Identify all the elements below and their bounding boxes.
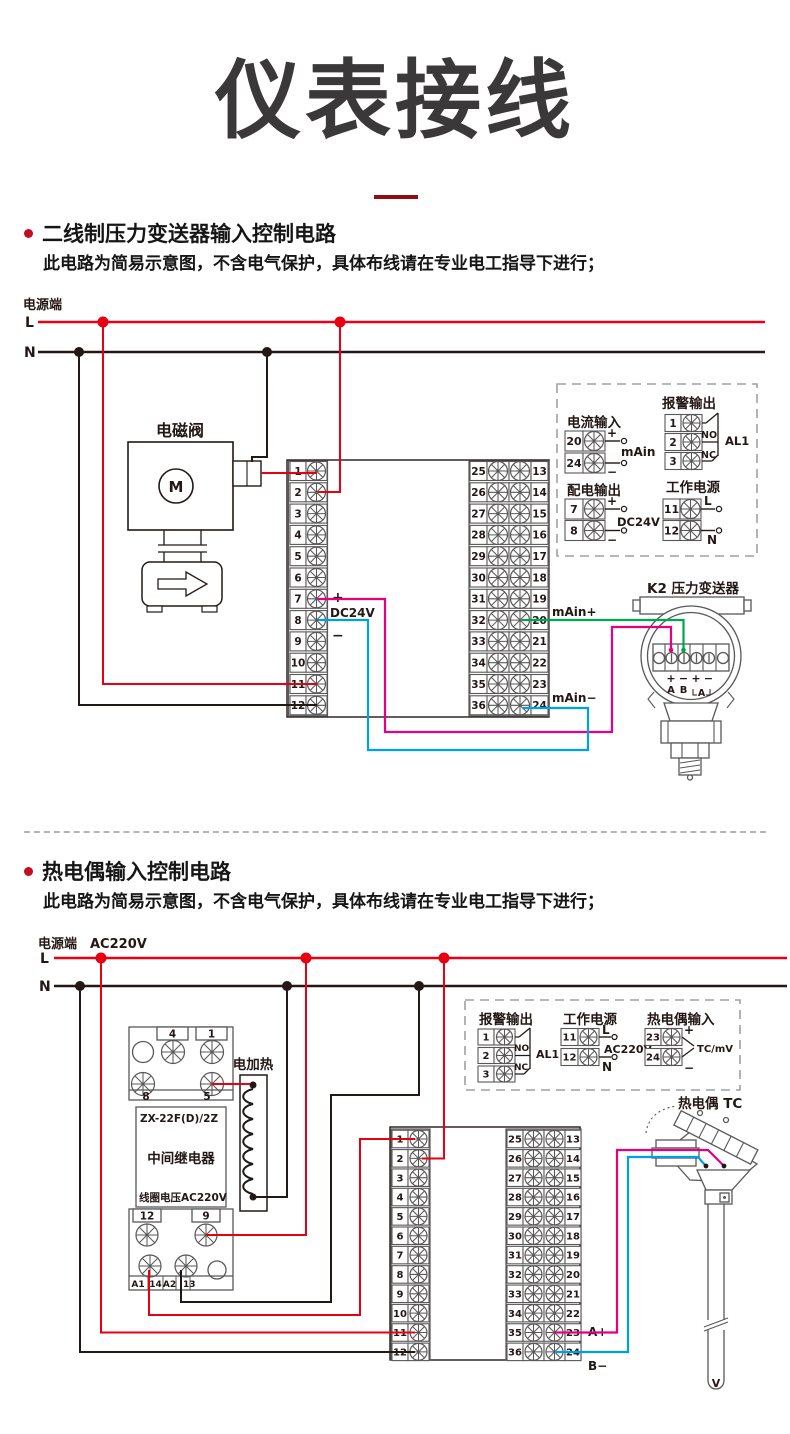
screw-icon <box>525 1131 542 1148</box>
screw-icon <box>585 521 604 540</box>
screw-icon <box>546 1285 563 1302</box>
screw-icon <box>683 453 700 470</box>
terminal-point <box>716 506 721 511</box>
terminal-number: 13 <box>532 466 547 478</box>
terminal-number: 3 <box>294 508 301 520</box>
screw-icon <box>525 1266 542 1283</box>
pol-label: + <box>691 672 700 685</box>
heater-terminal-dot <box>250 1194 257 1201</box>
screw-icon <box>546 1189 563 1206</box>
power-terminal-label: 电源端 <box>23 297 62 313</box>
screw-icon <box>511 589 530 608</box>
screw-icon <box>489 483 508 502</box>
screw-icon <box>489 611 508 630</box>
screw-icon <box>546 1131 563 1148</box>
terminal-number: 14 <box>532 487 547 499</box>
terminal-number: 20 <box>566 1270 580 1281</box>
terminal-number: 27 <box>508 1173 522 1184</box>
terminal-number: 9 <box>397 1289 404 1300</box>
line-l-label: L <box>25 315 34 331</box>
terminal-number: 1 <box>669 418 676 430</box>
screw-icon <box>410 1208 427 1225</box>
terminal-number: 4 <box>397 1193 404 1204</box>
section2-note: 此电路为简易示意图，不含电气保护，具体布线请在专业电工指导下进行； <box>43 887 604 912</box>
screw-icon <box>681 500 700 519</box>
dc24v-minus: − <box>332 628 344 644</box>
current-input-panel: 电流输入 2024 + mAin − <box>565 414 655 479</box>
screw-icon <box>525 1324 542 1341</box>
screw-icon <box>511 525 530 544</box>
terminal-number: 35 <box>508 1328 522 1339</box>
screw-icon <box>410 1247 427 1264</box>
terminal-number: 2 <box>294 487 301 499</box>
work-power-panel: 工作电源 1112 L N <box>663 479 722 547</box>
ci-minus: − <box>607 465 617 479</box>
section-divider <box>24 831 766 833</box>
screw-icon <box>308 654 326 672</box>
terminal-number: 34 <box>508 1309 522 1320</box>
terminal-number: 22 <box>532 657 547 669</box>
section1-heading-row: 二线制压力变送器输入控制电路 <box>24 218 336 248</box>
terminal-number: 24 <box>532 700 547 712</box>
line-n-label: N <box>24 345 36 361</box>
terminal-number: 3 <box>397 1173 404 1184</box>
pressure-transmitter: K2 压力变送器 + − + − A B A <box>633 580 751 780</box>
screw-icon <box>663 1029 680 1046</box>
terminal-number: 11 <box>393 1328 407 1339</box>
screw-icon <box>410 1266 427 1283</box>
terminal-number: 5 <box>294 551 301 563</box>
tc-minus: − <box>684 1061 694 1075</box>
page-title: 仪表接线 <box>0 30 790 155</box>
screw-icon <box>489 504 508 523</box>
terminal-number: 36 <box>508 1347 522 1358</box>
wp-n: N <box>707 533 717 547</box>
do-label: DC24V <box>617 515 660 529</box>
terminal-number: 23 <box>532 679 547 691</box>
line-n-label: N <box>39 979 51 995</box>
screw-icon <box>525 1227 542 1244</box>
bullet-icon <box>24 867 33 876</box>
terminal-number: 13 <box>566 1135 580 1146</box>
section1-heading: 二线制压力变送器输入控制电路 <box>42 218 336 248</box>
terminal-number: 26 <box>471 487 486 499</box>
terminal-number: 10 <box>291 657 306 669</box>
tc-tip-label: V <box>712 1377 721 1390</box>
screw-icon <box>308 569 326 587</box>
screw-icon <box>546 1169 563 1186</box>
wire-end-dot <box>722 1164 727 1169</box>
terminal-number: 26 <box>508 1154 522 1165</box>
screw-icon <box>308 526 326 544</box>
terminal-number: 12 <box>664 524 679 537</box>
terminal-number: 25 <box>508 1135 522 1146</box>
terminal-number: 25 <box>471 466 486 478</box>
terminal-number: 3 <box>483 1070 490 1081</box>
motor-label: M <box>169 478 184 496</box>
terminal-number: 19 <box>566 1251 580 1262</box>
terminal-number: 10 <box>393 1309 407 1320</box>
wiring-infographic: 仪表接线 二线制压力变送器输入控制电路 此电路为简易示意图，不含电气保护，具体布… <box>0 0 790 1434</box>
wire-end-dot <box>681 648 686 653</box>
screw-icon <box>511 568 530 587</box>
screw-icon <box>546 1227 563 1244</box>
bullet-icon <box>24 229 33 238</box>
screw-icon <box>683 434 700 451</box>
terminal-number: 24 <box>566 457 582 470</box>
terminal-number: 16 <box>566 1193 580 1204</box>
nc-label: NC <box>701 450 716 461</box>
terminal-number: 23 <box>646 1033 660 1044</box>
screw-icon <box>489 653 508 672</box>
relay-terminal-number: 5 <box>203 1091 210 1103</box>
terminal-number: 7 <box>397 1251 404 1262</box>
terminal-number: 19 <box>532 594 547 606</box>
no-label: NO <box>701 430 717 441</box>
relay-terminal-number: 12 <box>140 1211 155 1223</box>
screw-icon <box>525 1189 542 1206</box>
screw-icon <box>308 547 326 565</box>
section1-note: 此电路为简易示意图，不含电气保护，具体布线请在专业电工指导下进行； <box>43 249 604 274</box>
junction-dot <box>98 317 109 328</box>
power-terminal-label: 电源端 <box>38 936 77 952</box>
tc-input-panel: 热电偶输入 2324 + TC/mV − <box>645 1011 733 1075</box>
terminal-number: 2 <box>483 1051 490 1062</box>
ac220v-label: AC220V <box>90 937 147 952</box>
transmitter-title: K2 压力变送器 <box>647 580 740 597</box>
solenoid-valve: 电磁阀 M <box>128 421 261 612</box>
terminal-number: 28 <box>508 1193 522 1204</box>
work-title: 工作电源 <box>666 479 720 496</box>
tc-label: TC/mV <box>697 1044 733 1055</box>
junction-dot <box>282 981 292 991</box>
terminal-point <box>621 528 626 533</box>
terminal-number: 11 <box>664 503 679 516</box>
terminal-number: 11 <box>563 1033 577 1044</box>
terminal-number: 35 <box>471 679 486 691</box>
screw-icon <box>546 1247 563 1264</box>
screw-icon <box>663 1049 680 1066</box>
al1-label: AL1 <box>536 1048 559 1061</box>
screw-icon <box>546 1150 563 1167</box>
screw-icon <box>489 696 508 715</box>
screw-icon <box>489 589 508 608</box>
port-label: A <box>667 685 675 696</box>
junction-dot <box>96 953 107 964</box>
terminal-number: 5 <box>397 1212 404 1223</box>
screw-icon <box>410 1227 427 1244</box>
section2-heading-row: 热电偶输入控制电路 <box>24 856 231 886</box>
terminal-number: 17 <box>566 1212 580 1223</box>
screw-icon <box>525 1150 542 1167</box>
title-underline <box>374 195 418 199</box>
alarm-title: 报警输出 <box>479 1011 533 1028</box>
terminal-number: 30 <box>471 572 486 584</box>
do-plus: + <box>607 494 617 508</box>
screw-icon <box>201 1041 224 1064</box>
junction-dot <box>335 317 346 328</box>
screw-icon <box>683 415 700 432</box>
relay-name: 中间继电器 <box>147 1150 215 1167</box>
junction-dot <box>262 347 272 357</box>
screw-icon <box>585 432 604 451</box>
dc24v-label: DC24V <box>330 606 375 620</box>
screw-icon <box>511 483 530 502</box>
wire-end-dot <box>704 1164 709 1169</box>
junction-dot <box>74 347 84 357</box>
terminal-number: 14 <box>566 1154 580 1165</box>
junction-dot <box>414 981 424 991</box>
screw-icon <box>511 504 530 523</box>
junction-dot <box>301 953 312 964</box>
pol-label: + <box>666 672 675 685</box>
wp-l: L <box>704 494 712 508</box>
alarm-output-panel: 报警输出 123 NO NC AL1 <box>478 1011 559 1082</box>
terminal-number: 33 <box>471 636 486 648</box>
screw-icon <box>308 462 326 480</box>
screw-icon <box>489 462 508 481</box>
screw-icon <box>497 1048 513 1064</box>
port-label: B <box>680 685 688 696</box>
electric-heater: 电加热 <box>233 1056 274 1211</box>
pol-label: − <box>704 672 713 685</box>
screw-icon <box>525 1247 542 1264</box>
screw-icon <box>580 1049 597 1066</box>
screw-icon <box>489 675 508 694</box>
terminal-number: 12 <box>291 700 306 712</box>
terminal-number: 7 <box>294 594 301 606</box>
terminal-number: 32 <box>471 615 486 627</box>
thermocouple: 热电偶 TC V <box>646 1095 758 1390</box>
screw-icon <box>308 505 326 523</box>
terminal-number: 22 <box>566 1309 580 1320</box>
terminal-number: 34 <box>471 657 486 669</box>
terminal-number: 2 <box>669 437 676 449</box>
pol-label: − <box>679 672 688 685</box>
intermediate-relay: 4 1 8 5 ZX-22F(D)/2Z 中间继电器 线圈电压AC220V 12… <box>129 1027 233 1290</box>
terminal-number: 4 <box>294 530 301 542</box>
relay-pad-label: 14 <box>149 1280 162 1290</box>
terminal-number: 24 <box>646 1053 660 1064</box>
terminal-point <box>621 506 626 511</box>
terminal-number: 17 <box>532 551 547 563</box>
screw-icon <box>162 1041 185 1064</box>
screw-icon <box>511 632 530 651</box>
screw-icon <box>410 1305 427 1322</box>
dist-output-panel: 配电输出 78 + DC24V − <box>565 482 660 547</box>
screw-icon <box>525 1285 542 1302</box>
al1-label: AL1 <box>725 434 749 448</box>
screw-icon <box>681 521 700 540</box>
relay-terminal-number: 1 <box>208 1029 215 1041</box>
terminal-number: 7 <box>570 503 578 516</box>
do-minus: − <box>607 533 617 547</box>
screw-icon <box>489 525 508 544</box>
section2-heading: 热电偶输入控制电路 <box>42 856 231 886</box>
relay-model: ZX-22F(D)/2Z <box>140 1113 218 1125</box>
terminal-number: 29 <box>471 551 486 563</box>
work-power-panel: 工作电源 1112 L AC220V N <box>561 1011 653 1074</box>
terminal-number: 21 <box>566 1289 580 1300</box>
screw-icon <box>585 500 604 519</box>
relay-pad-label: 13 <box>183 1280 196 1290</box>
terminal-point <box>612 1055 617 1060</box>
section1-diagram: 电源端 L N 电磁阀 M 123456789101112 2526272829… <box>0 285 790 815</box>
terminal-number: 1 <box>294 466 301 478</box>
terminal-number: 18 <box>566 1231 580 1242</box>
screw-icon <box>525 1305 542 1322</box>
screw-icon <box>585 454 604 473</box>
terminal-number: 8 <box>294 615 301 627</box>
screw-icon <box>497 1066 513 1082</box>
terminal-number: 16 <box>532 530 547 542</box>
terminal-number: 2 <box>397 1154 404 1165</box>
heater-terminal-dot <box>250 1082 257 1089</box>
alarm-title: 报警输出 <box>662 395 716 412</box>
terminal-number: 12 <box>563 1053 577 1064</box>
no-label: NO <box>514 1044 530 1054</box>
heater-label: 电加热 <box>233 1056 274 1073</box>
screw-icon <box>511 675 530 694</box>
terminal-point <box>621 460 626 465</box>
terminal-number: 31 <box>471 594 486 606</box>
screw-icon <box>410 1285 427 1302</box>
terminal-point <box>612 1035 617 1040</box>
terminal-number: 3 <box>669 456 676 468</box>
screw-icon <box>489 568 508 587</box>
wire-end-dot <box>669 648 674 653</box>
relay-terminal-number: 9 <box>202 1211 209 1223</box>
screw-icon <box>511 547 530 566</box>
port-label: A <box>698 688 706 699</box>
legend-panel-2: 报警输出 123 NO NC AL1 工作电源 1112 L AC220V N … <box>465 1000 740 1090</box>
screw-icon <box>525 1169 542 1186</box>
terminal-number: 36 <box>471 700 486 712</box>
screw-icon <box>525 1343 542 1360</box>
terminal-number: 28 <box>471 530 486 542</box>
main-in-plus-label: mAin+ <box>552 605 597 619</box>
relay-pad-label: A2 <box>163 1280 176 1290</box>
instrument-terminal-block: 123456789101112 252627282930313233343536… <box>287 460 597 717</box>
relay-coil-label: 线圈电压AC220V <box>139 1191 228 1204</box>
terminal-number: 15 <box>566 1173 580 1184</box>
terminal-number: 20 <box>566 435 582 448</box>
terminal-number: 27 <box>471 508 486 520</box>
nc-label: NC <box>514 1063 529 1073</box>
wp-n: N <box>602 1060 612 1074</box>
terminal-number: 6 <box>294 572 301 584</box>
terminal-number: 1 <box>483 1033 490 1044</box>
screw-icon <box>546 1208 563 1225</box>
line-l-label: L <box>40 951 49 967</box>
terminal-number: 15 <box>532 508 547 520</box>
screw-icon <box>525 1208 542 1225</box>
screw-icon <box>546 1266 563 1283</box>
screw-icon <box>580 1029 597 1046</box>
screw-icon <box>511 653 530 672</box>
relay-terminal-number: 4 <box>169 1029 176 1041</box>
terminal-number: 29 <box>508 1212 522 1223</box>
screw-icon <box>546 1305 563 1322</box>
section2-diagram: 电源端 AC220V L N 4 1 8 5 ZX-22F(D)/2Z 中间继电… <box>0 925 790 1410</box>
screw-icon <box>308 632 326 650</box>
alarm-output-panel: 报警输出 123 NO NC AL1 <box>662 395 749 470</box>
screw-icon <box>175 1255 197 1277</box>
solenoid-valve-label: 电磁阀 <box>156 421 204 440</box>
terminal-number: 21 <box>532 636 547 648</box>
terminal-number: 1 <box>397 1135 404 1146</box>
instrument-terminal-block-2: 123456789101112 252627282930313233343536… <box>390 1127 607 1373</box>
terminal-number: 30 <box>508 1231 522 1242</box>
terminal-number: 33 <box>508 1289 522 1300</box>
screw-icon <box>489 547 508 566</box>
terminal-number: 8 <box>570 524 578 537</box>
tc-title: 热电偶 TC <box>678 1095 742 1112</box>
junction-dot <box>75 981 85 991</box>
terminal-number: 31 <box>508 1251 522 1262</box>
tc-plus: + <box>684 1023 694 1037</box>
terminal-point <box>716 528 721 533</box>
terminal-number: 9 <box>294 636 301 648</box>
junction-dot <box>439 953 450 964</box>
screw-icon <box>136 1224 158 1246</box>
wp-l: L <box>602 1023 610 1037</box>
terminal-number: 32 <box>508 1270 522 1281</box>
tc-input-title: 热电偶输入 <box>647 1011 715 1028</box>
screw-icon <box>410 1169 427 1186</box>
main-in-minus-label: mAin− <box>552 691 597 705</box>
terminal-number: 6 <box>397 1231 404 1242</box>
screw-icon <box>497 1029 513 1045</box>
screw-icon <box>511 696 530 715</box>
ci-plus: + <box>607 426 617 440</box>
screw-icon <box>489 632 508 651</box>
terminal-number: 18 <box>532 572 547 584</box>
terminal-number: 8 <box>397 1270 404 1281</box>
screw-icon <box>511 462 530 481</box>
terminal-point <box>621 438 626 443</box>
legend-panel-1: 电流输入 2024 + mAin − 报警输出 123 NO NC AL1 配电… <box>557 384 757 556</box>
relay-terminal-number: 8 <box>142 1091 149 1103</box>
ci-label: mAin <box>621 445 655 459</box>
relay-pad-label: A1 <box>131 1280 144 1290</box>
b-minus-label: B− <box>588 1359 607 1373</box>
screw-icon <box>410 1189 427 1206</box>
